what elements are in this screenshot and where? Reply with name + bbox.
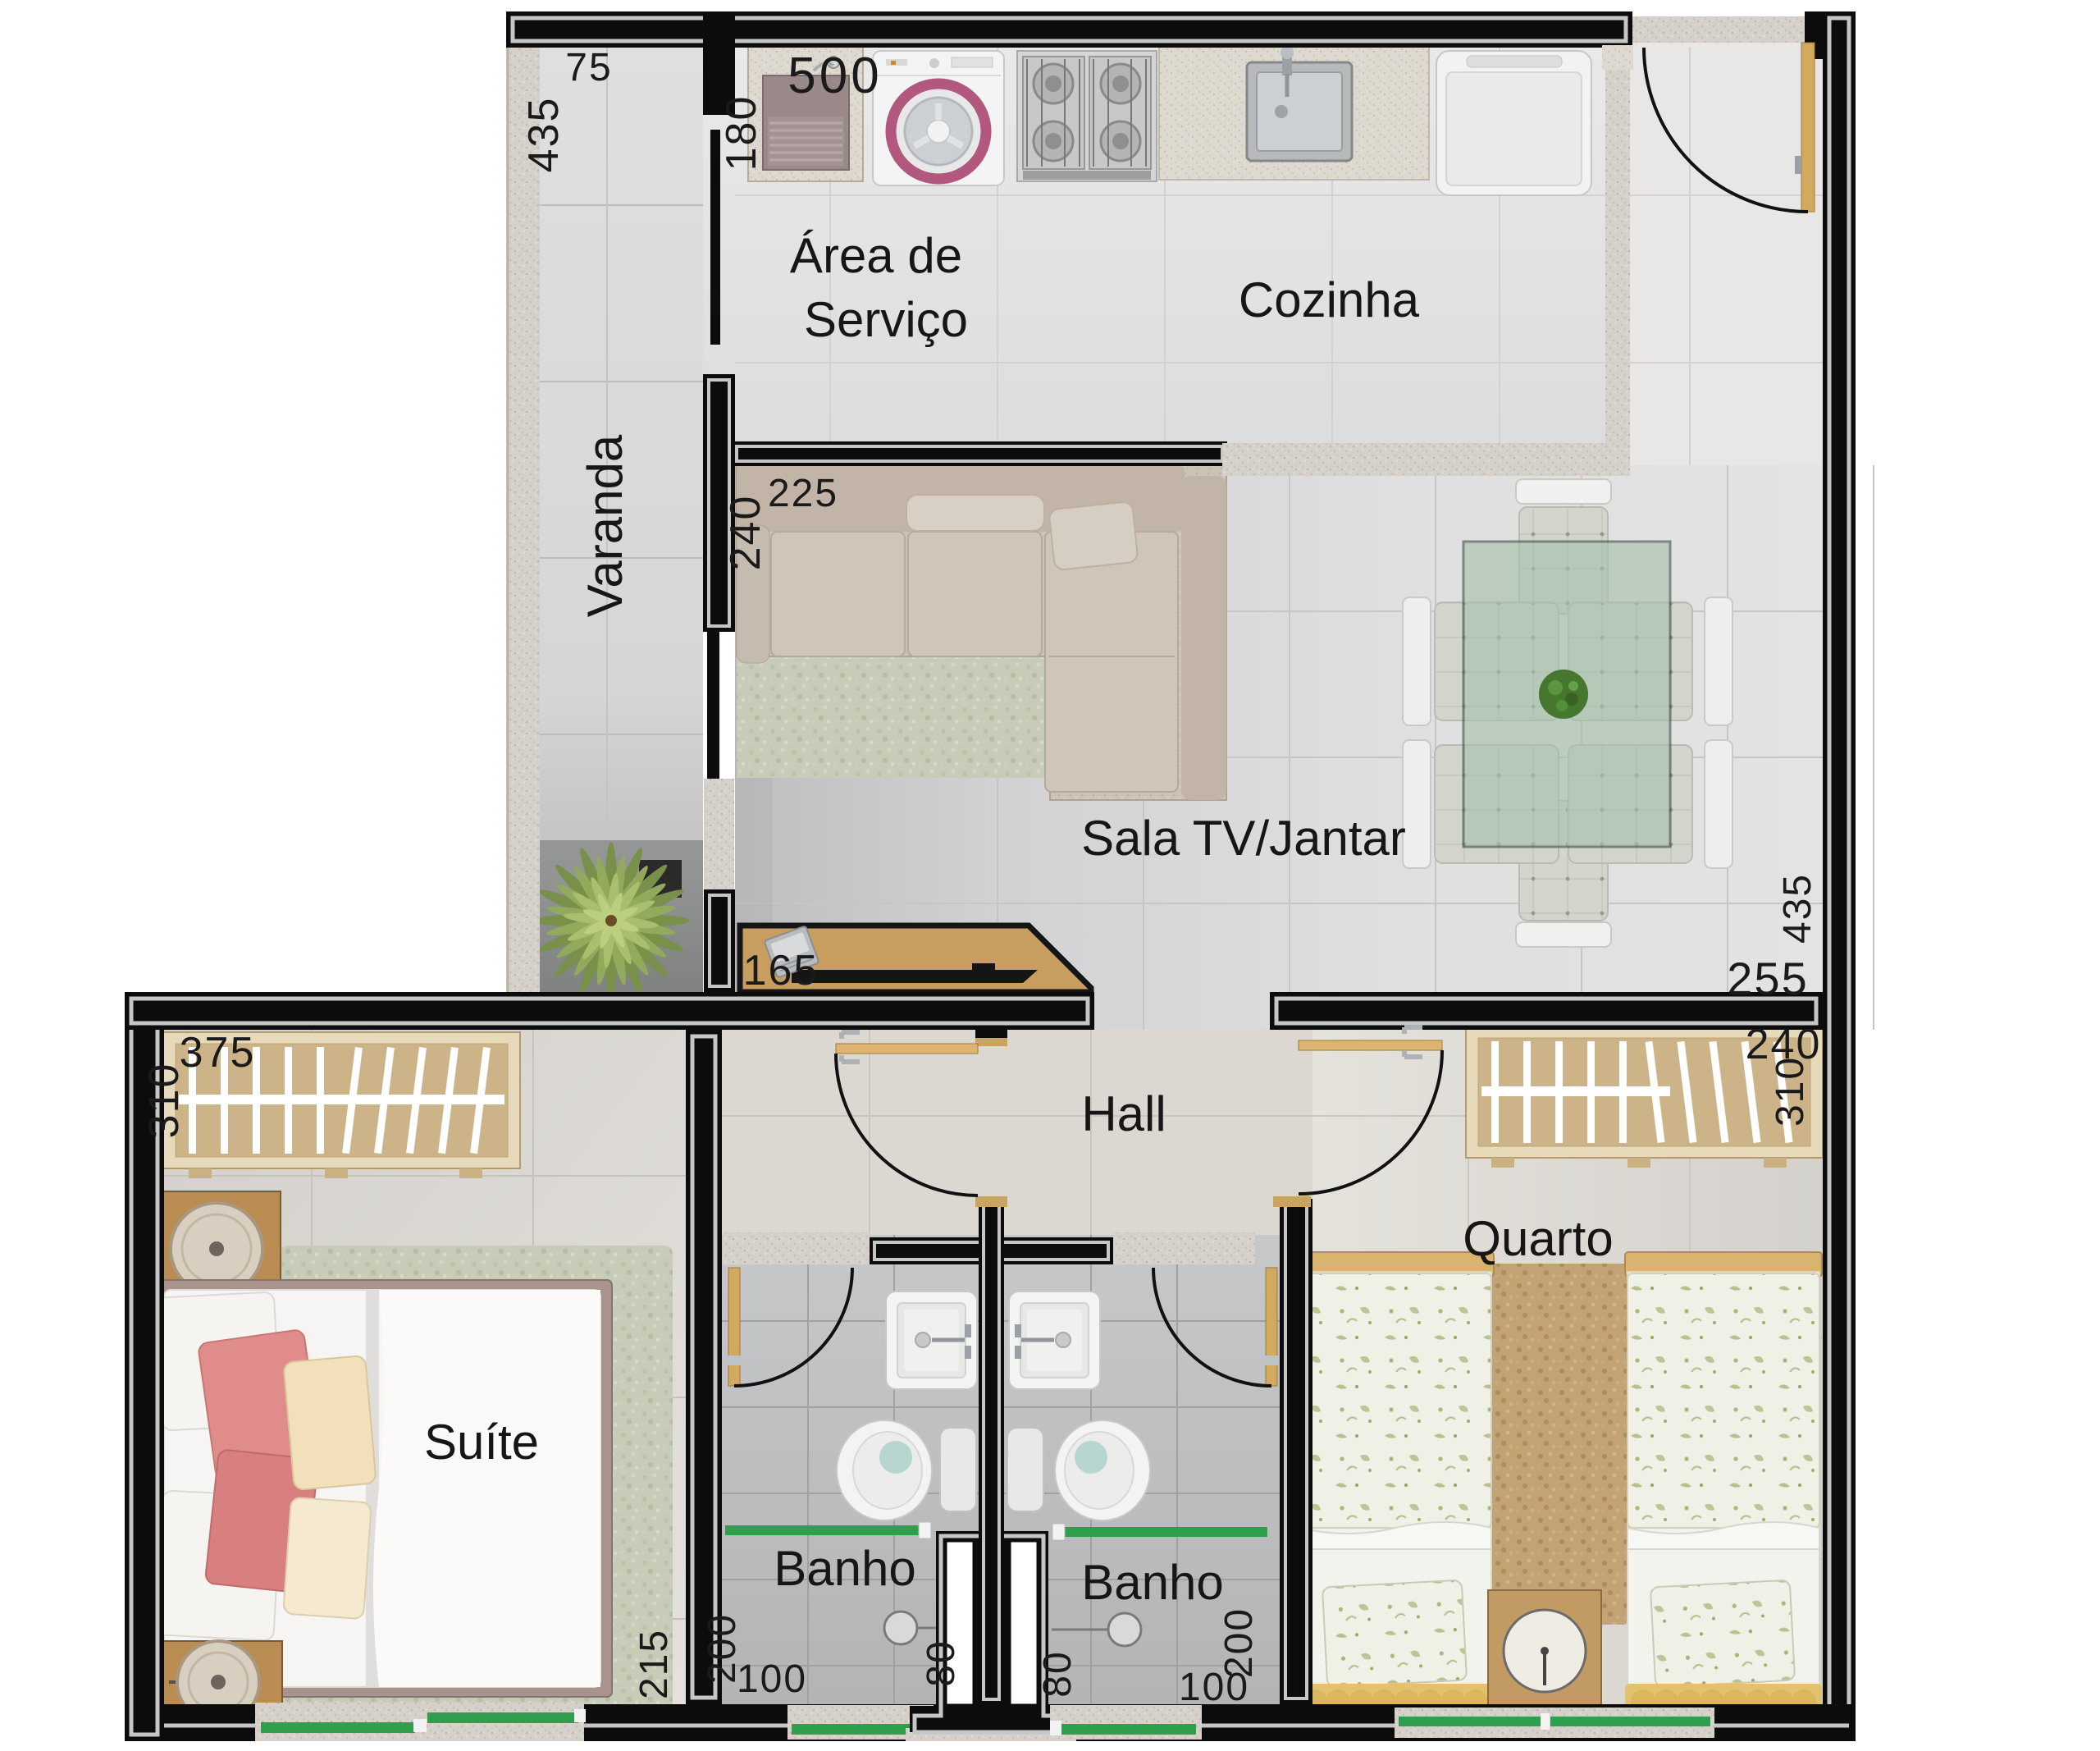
svg-text:Área de: Área de — [790, 228, 962, 283]
svg-text:375: 375 — [180, 1029, 256, 1077]
svg-text:Hall: Hall — [1081, 1086, 1166, 1141]
svg-text:Quarto: Quarto — [1463, 1211, 1613, 1266]
svg-text:225: 225 — [768, 472, 838, 515]
svg-text:500: 500 — [787, 48, 882, 104]
svg-text:180: 180 — [718, 95, 765, 171]
svg-text:435: 435 — [520, 97, 568, 173]
svg-text:215: 215 — [632, 1629, 676, 1699]
svg-text:80: 80 — [920, 1639, 963, 1686]
svg-text:Varanda: Varanda — [577, 434, 632, 617]
svg-text:Serviço: Serviço — [804, 292, 968, 347]
svg-text:75: 75 — [565, 46, 612, 89]
svg-text:200: 200 — [1217, 1607, 1261, 1678]
svg-text:Banho: Banho — [1081, 1555, 1224, 1610]
svg-text:80: 80 — [1036, 1650, 1080, 1697]
svg-text:Banho: Banho — [774, 1541, 916, 1596]
svg-text:165: 165 — [743, 947, 819, 994]
svg-text:Cozinha: Cozinha — [1239, 272, 1420, 327]
svg-text:Suíte: Suíte — [424, 1415, 539, 1470]
svg-text:240: 240 — [722, 495, 769, 571]
svg-text:310: 310 — [140, 1063, 188, 1139]
svg-text:435: 435 — [1776, 873, 1819, 944]
svg-text:100: 100 — [737, 1657, 807, 1701]
svg-text:310: 310 — [1769, 1056, 1812, 1127]
svg-text:255: 255 — [1727, 953, 1808, 1004]
svg-text:Sala TV/Jantar: Sala TV/Jantar — [1081, 811, 1406, 866]
